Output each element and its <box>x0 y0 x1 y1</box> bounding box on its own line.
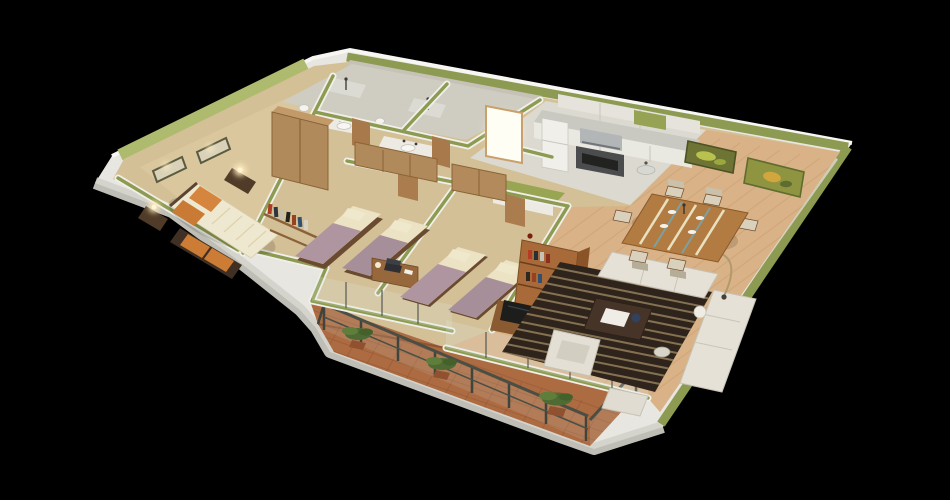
blue-bowl <box>632 314 641 323</box>
screenshot-stage <box>0 0 950 500</box>
candelabra-top <box>682 203 685 206</box>
tap-2b <box>415 143 418 146</box>
place-setting <box>688 230 696 234</box>
tap-2a <box>403 140 406 143</box>
book <box>526 272 530 281</box>
book <box>528 250 532 259</box>
shower-head-1-dot <box>344 77 347 80</box>
plant-foliage-hi <box>426 357 442 365</box>
wall-lamp-glow <box>207 145 214 152</box>
side-table <box>654 347 670 357</box>
sink-basin-1 <box>337 123 351 130</box>
plant-foliage-hi <box>539 392 557 400</box>
book <box>292 215 296 225</box>
nightstand-lamp <box>237 167 242 172</box>
fridge <box>542 118 568 172</box>
plant-foliage-dk <box>359 328 373 335</box>
book <box>532 273 536 282</box>
kitchen-sink <box>637 166 655 175</box>
bedroom3-door <box>505 194 525 227</box>
floor-lamp-base <box>721 294 726 299</box>
plant-foliage-dk <box>443 358 457 365</box>
book <box>538 274 542 283</box>
vase <box>527 233 532 238</box>
wall-lamp-glow <box>163 163 170 170</box>
plant-foliage-dk <box>559 393 573 400</box>
place-setting <box>660 224 668 228</box>
floor-plan-canvas <box>0 0 950 500</box>
place-setting <box>668 210 676 214</box>
place-setting <box>696 216 704 220</box>
book <box>534 251 538 260</box>
book <box>546 254 550 263</box>
art-blob <box>714 159 726 165</box>
entry-door <box>486 106 522 163</box>
round-cushion <box>694 306 706 318</box>
book <box>540 252 544 261</box>
plant-foliage-hi <box>342 327 358 335</box>
entry-door-panel <box>486 106 522 163</box>
toilet-1 <box>299 105 309 112</box>
book <box>304 220 308 230</box>
art-blob <box>780 181 792 187</box>
desk-lamp <box>375 262 381 268</box>
book <box>280 209 284 219</box>
book <box>274 207 279 217</box>
nightstand-lamp <box>152 205 157 210</box>
kitchen-tap <box>644 161 647 164</box>
sink-basin-2 <box>401 145 415 152</box>
